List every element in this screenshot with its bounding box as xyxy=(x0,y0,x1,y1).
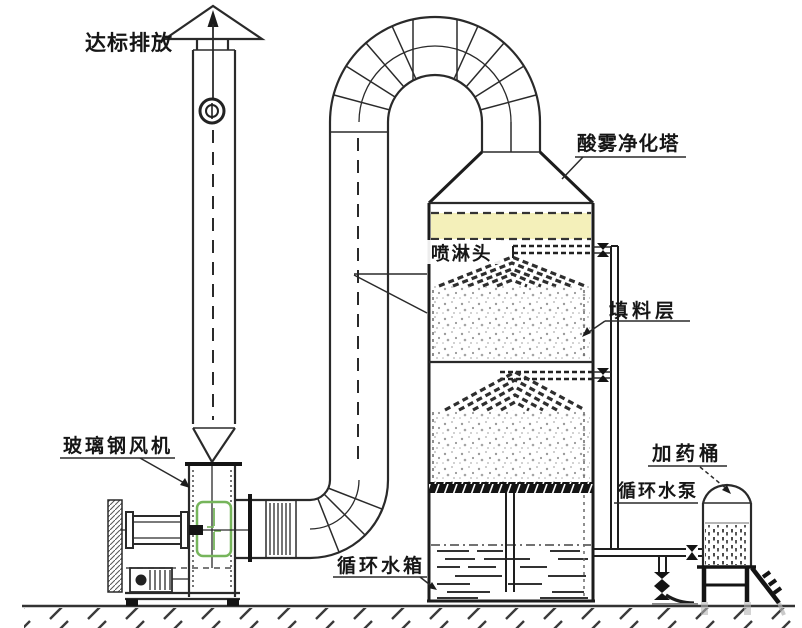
ground xyxy=(22,606,795,628)
circulation-pump xyxy=(652,572,698,604)
packing-layer-upper xyxy=(429,286,593,362)
fan-motor xyxy=(126,512,188,548)
barrel-liquid xyxy=(705,525,749,565)
tank-down-pipe xyxy=(506,493,514,592)
valve-icon-dosing xyxy=(686,545,698,560)
circulation-riser-pipe xyxy=(593,243,703,574)
sampling-port-icon xyxy=(200,99,224,123)
motor-base-unit xyxy=(130,568,190,592)
packing-layer-lower xyxy=(432,410,590,482)
exhaust-stack xyxy=(165,6,262,424)
flex-connector xyxy=(266,500,296,558)
valve-icon-upper xyxy=(593,243,611,257)
purification-tower xyxy=(427,152,595,601)
fan-outlet-duct xyxy=(235,494,310,562)
fan-shaft-hub xyxy=(189,525,203,535)
label-water-tank: 循环水箱 xyxy=(337,554,425,577)
spray-header-lower xyxy=(500,372,592,379)
packing-support-plate xyxy=(429,482,593,493)
tower-cone xyxy=(429,152,482,203)
tank-water xyxy=(431,545,591,598)
motor-bracket xyxy=(108,500,122,592)
schematic-canvas: 达标排放 酸雾净化塔 喷淋头 填料层 玻璃钢风机 循环水箱 循环水泵 加药桶 xyxy=(0,0,802,628)
dosing-barrel xyxy=(697,485,784,615)
up-arrow-icon xyxy=(208,10,219,98)
demister-layer xyxy=(431,213,591,239)
label-water-pump: 循环水泵 xyxy=(618,480,698,502)
fan-base-frame xyxy=(125,593,240,606)
process-diagram: 达标排放 酸雾净化塔 喷淋头 填料层 玻璃钢风机 循环水箱 循环水泵 加药桶 xyxy=(0,0,802,628)
valve-icon-lower xyxy=(593,368,611,382)
spray-header-upper xyxy=(513,246,592,258)
label-spray-head: 喷淋头 xyxy=(431,243,493,265)
label-tower: 酸雾净化塔 xyxy=(577,132,680,155)
label-discharge: 达标排放 xyxy=(85,31,173,55)
duct-elbow xyxy=(310,480,388,558)
barrel-stand xyxy=(697,567,784,615)
annotations: 达标排放 酸雾净化塔 喷淋头 填料层 玻璃钢风机 循环水箱 循环水泵 加药桶 xyxy=(60,31,731,590)
spray-pattern-lower xyxy=(445,372,585,410)
vertical-duct xyxy=(330,122,388,480)
label-packing-layer: 填料层 xyxy=(609,299,678,322)
label-fan: 玻璃钢风机 xyxy=(63,434,173,457)
fan-inlet-flange xyxy=(185,462,242,466)
duct-flange xyxy=(248,494,252,562)
label-dosing-barrel: 加药桶 xyxy=(651,442,723,465)
